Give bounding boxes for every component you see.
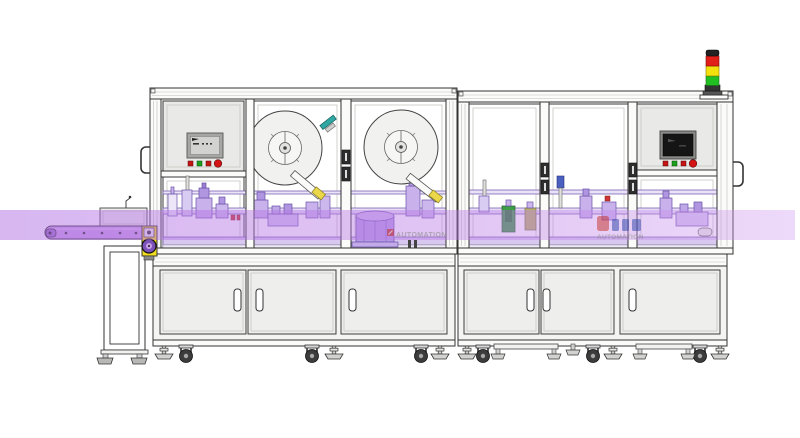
caster-wheel bbox=[476, 345, 490, 363]
door-handle bbox=[543, 289, 550, 311]
base-door bbox=[541, 270, 614, 334]
door-handle bbox=[256, 289, 263, 311]
support-bar-1 bbox=[491, 344, 561, 359]
stand-foot bbox=[97, 358, 113, 364]
machine-left-base bbox=[153, 254, 455, 363]
door-handle bbox=[629, 289, 636, 311]
door-handle bbox=[234, 289, 241, 311]
stand-foot bbox=[131, 358, 147, 364]
base-door bbox=[160, 270, 246, 334]
door-handle bbox=[527, 289, 534, 311]
hmi-left-button-1 bbox=[188, 161, 193, 166]
hmi-right-button-4 bbox=[689, 160, 697, 168]
leveling-foot bbox=[325, 346, 343, 359]
door-handle-right-exterior bbox=[733, 162, 743, 186]
leveling-foot bbox=[431, 346, 449, 359]
tower-light-green bbox=[706, 76, 719, 86]
label-reel-1 bbox=[248, 111, 322, 185]
support-bar-2 bbox=[633, 344, 695, 359]
hmi-screen-right bbox=[663, 134, 693, 156]
illustration-canvas: AUTOMATION AUTOMATION bbox=[0, 0, 800, 438]
caster-wheel bbox=[414, 345, 428, 363]
leveling-foot bbox=[604, 346, 622, 359]
leveling-foot bbox=[458, 346, 476, 359]
watermark-text-left: AUTOMATION bbox=[396, 232, 447, 239]
hmi-left-button-4 bbox=[214, 160, 222, 168]
hmi-right-button-2 bbox=[672, 161, 677, 166]
hmi-right-button-3 bbox=[681, 161, 686, 166]
label-reel-2 bbox=[364, 110, 438, 184]
sensor-wire bbox=[126, 198, 130, 208]
base-door bbox=[341, 270, 447, 334]
caster-wheel bbox=[179, 345, 193, 363]
tower-light-red bbox=[706, 56, 719, 66]
leveling-foot bbox=[155, 346, 173, 359]
tower-cap bbox=[706, 50, 719, 56]
caster-wheel bbox=[305, 345, 319, 363]
hmi-left-button-3 bbox=[206, 161, 211, 166]
caster-wheel bbox=[586, 345, 600, 363]
machine-line-illustration: AUTOMATION AUTOMATION bbox=[0, 0, 800, 438]
machine-right-base bbox=[458, 254, 729, 363]
door-handle-left-exterior bbox=[141, 147, 150, 173]
door-handle bbox=[349, 289, 356, 311]
hmi-right-button-1 bbox=[663, 161, 668, 166]
conveyor-stand bbox=[97, 246, 148, 364]
leveling-foot bbox=[711, 346, 729, 359]
hmi-left-button-2 bbox=[197, 161, 202, 166]
machine-right bbox=[458, 50, 743, 363]
tower-light-yellow bbox=[706, 66, 719, 76]
watermark-text-right: AUTOMATION bbox=[597, 234, 643, 241]
